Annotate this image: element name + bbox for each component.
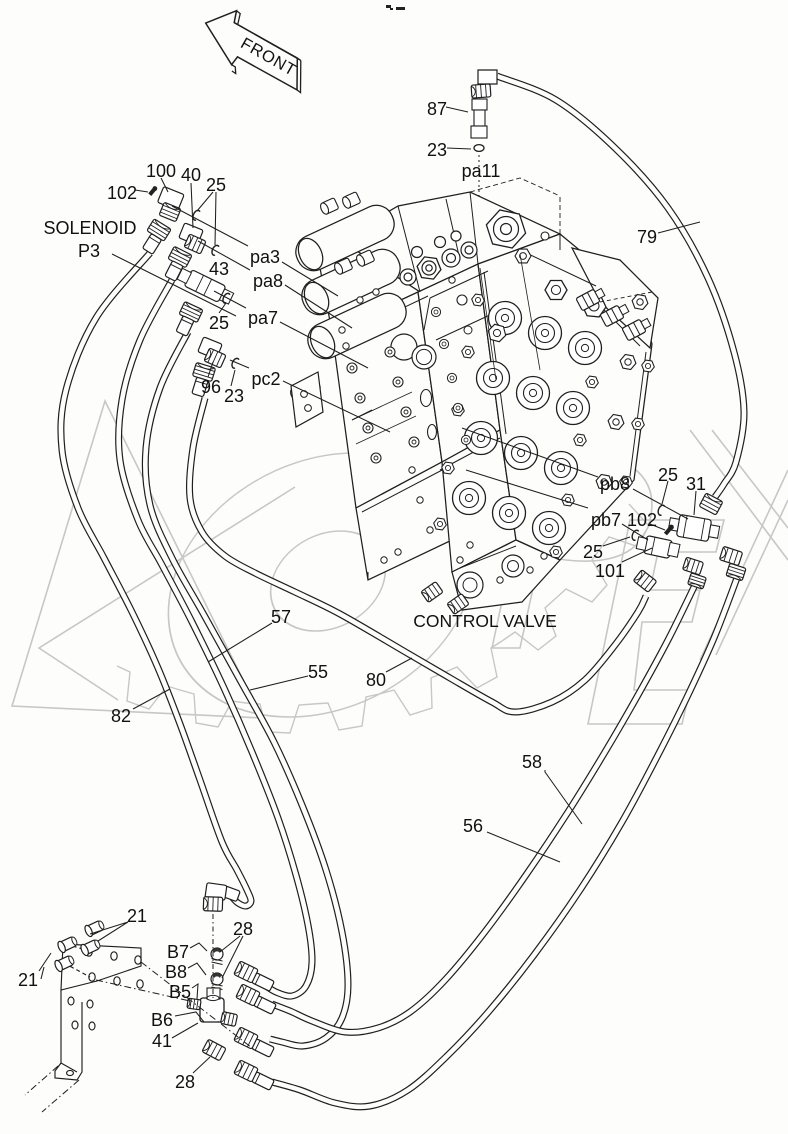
svg-text:B8: B8 — [165, 962, 187, 982]
svg-text:57: 57 — [271, 607, 291, 627]
svg-text:pa7: pa7 — [248, 308, 278, 328]
svg-text:B5: B5 — [169, 982, 191, 1002]
svg-text:pa11: pa11 — [462, 161, 501, 181]
svg-text:25: 25 — [583, 542, 603, 562]
svg-text:80: 80 — [366, 670, 386, 690]
svg-text:28: 28 — [175, 1072, 195, 1092]
svg-text:SOLENOID: SOLENOID — [43, 218, 136, 238]
svg-text:40: 40 — [181, 165, 201, 185]
svg-text:55: 55 — [308, 662, 328, 682]
svg-text:pa8: pa8 — [253, 271, 283, 291]
svg-text:P3: P3 — [78, 241, 100, 261]
svg-text:pc2: pc2 — [251, 369, 280, 389]
svg-text:102: 102 — [107, 183, 137, 203]
svg-text:23: 23 — [224, 386, 244, 406]
svg-text:31: 31 — [686, 474, 706, 494]
svg-text:25: 25 — [206, 175, 226, 195]
svg-text:102: 102 — [627, 510, 657, 530]
svg-text:87: 87 — [427, 99, 447, 119]
svg-text:58: 58 — [522, 752, 542, 772]
svg-text:43: 43 — [209, 259, 229, 279]
svg-text:56: 56 — [463, 816, 483, 836]
svg-text:CONTROL VALVE: CONTROL VALVE — [413, 611, 557, 631]
svg-text:pb7: pb7 — [591, 510, 621, 530]
svg-text:82: 82 — [111, 706, 131, 726]
svg-text:96: 96 — [201, 377, 221, 397]
svg-text:25: 25 — [658, 465, 678, 485]
svg-text:101: 101 — [595, 561, 625, 581]
svg-text:25: 25 — [209, 313, 229, 333]
svg-text:21: 21 — [127, 906, 147, 926]
svg-text:23: 23 — [427, 140, 447, 160]
svg-text:28: 28 — [233, 919, 253, 939]
svg-text:B7: B7 — [167, 942, 189, 962]
svg-text:pb8: pb8 — [600, 474, 630, 494]
svg-text:21: 21 — [18, 970, 38, 990]
svg-text:41: 41 — [152, 1031, 172, 1051]
svg-text:B6: B6 — [151, 1010, 173, 1030]
svg-text:100: 100 — [146, 161, 176, 181]
svg-text:79: 79 — [637, 227, 657, 247]
svg-text:pa3: pa3 — [250, 247, 280, 267]
